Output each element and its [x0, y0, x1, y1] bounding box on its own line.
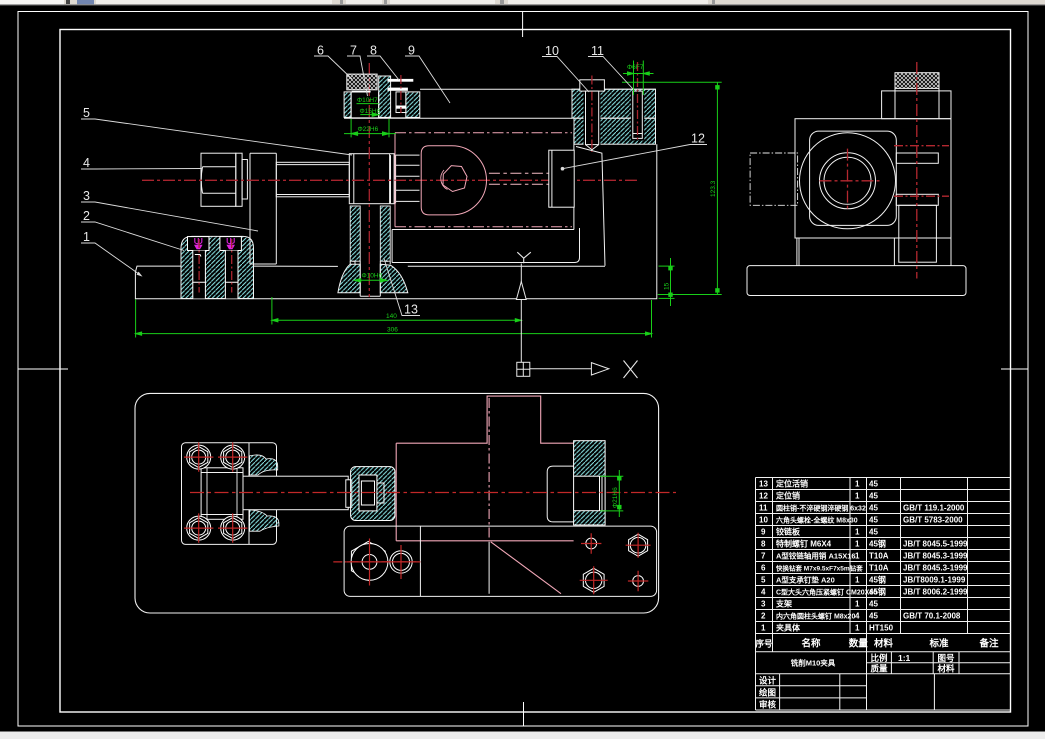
svg-text:JB/T 8006.2-1999: JB/T 8006.2-1999	[903, 588, 968, 597]
svg-text:特制螺钉 M6X4: 特制螺钉 M6X4	[776, 539, 832, 549]
svg-text:支架: 支架	[775, 599, 792, 609]
svg-text:序号: 序号	[754, 639, 773, 649]
svg-text:45: 45	[869, 516, 878, 525]
svg-text:4: 4	[855, 612, 860, 621]
svg-text:Φ10H6: Φ10H6	[362, 273, 383, 280]
svg-text:9: 9	[761, 528, 766, 537]
svg-text:45: 45	[869, 492, 878, 501]
svg-text:4: 4	[761, 588, 766, 597]
svg-text:10: 10	[545, 44, 559, 58]
svg-text:1: 1	[855, 576, 860, 585]
svg-text:6: 6	[761, 564, 766, 573]
svg-text:13: 13	[759, 480, 768, 489]
svg-text:JB/T 8045.5-1999: JB/T 8045.5-1999	[903, 540, 968, 549]
svg-text:夹具体: 夹具体	[776, 623, 801, 633]
svg-text:JB/T8009.1-1999: JB/T8009.1-1999	[903, 576, 966, 585]
svg-text:11: 11	[591, 44, 604, 58]
svg-text:GB/T 119.1-2000: GB/T 119.1-2000	[903, 504, 965, 513]
svg-text:2: 2	[761, 612, 766, 621]
svg-text:1: 1	[855, 624, 860, 633]
svg-text:1: 1	[855, 480, 860, 489]
svg-text:备注: 备注	[978, 638, 999, 650]
svg-text:45: 45	[869, 504, 878, 513]
svg-text:45: 45	[869, 480, 878, 489]
svg-text:4: 4	[83, 156, 90, 170]
svg-text:HT150: HT150	[869, 624, 894, 633]
svg-text:六角头螺栓-全螺纹 M8x30: 六角头螺栓-全螺纹 M8x30	[776, 516, 858, 525]
svg-text:JB/T 8045.3-1999: JB/T 8045.3-1999	[903, 552, 968, 561]
svg-text:数量: 数量	[848, 638, 869, 650]
svg-text:11: 11	[759, 504, 768, 513]
svg-text:3: 3	[761, 600, 766, 609]
svg-text:Φ21H6: Φ21H6	[612, 487, 619, 508]
svg-text:快换钻套 M7x9.5xF7x5m钻套: 快换钻套 M7x9.5xF7x5m钻套	[776, 564, 863, 573]
svg-text:材料: 材料	[936, 664, 955, 674]
svg-text:T10A: T10A	[869, 552, 889, 561]
svg-text:Φ10H7: Φ10H7	[357, 97, 378, 104]
svg-text:A型铰链轴用销 A15X16: A型铰链轴用销 A15X16	[776, 551, 856, 561]
svg-text:Φ6F7: Φ6F7	[627, 64, 644, 71]
svg-text:铰链板: 铰链板	[776, 527, 801, 537]
svg-text:13: 13	[404, 303, 418, 317]
svg-text:1: 1	[855, 528, 860, 537]
svg-text:标准: 标准	[928, 638, 949, 650]
svg-text:Φ22H6: Φ22H6	[358, 126, 379, 133]
svg-text:306: 306	[387, 327, 398, 334]
svg-text:45: 45	[869, 612, 878, 621]
svg-text:审核: 审核	[759, 699, 777, 709]
svg-text:7: 7	[761, 552, 766, 561]
svg-text:GB/T 5783-2000: GB/T 5783-2000	[903, 516, 963, 525]
svg-text:5: 5	[761, 576, 766, 585]
svg-text:绘图: 绘图	[759, 687, 776, 697]
svg-text:T10A: T10A	[869, 564, 889, 573]
svg-text:设计: 设计	[759, 675, 777, 685]
svg-text:7: 7	[350, 44, 357, 58]
svg-text:1: 1	[855, 492, 860, 501]
svg-text:10: 10	[759, 516, 768, 525]
svg-text:A型支承钉垫 A20: A型支承钉垫 A20	[776, 575, 835, 585]
svg-text:45钢: 45钢	[869, 575, 886, 585]
svg-text:15: 15	[664, 282, 671, 290]
svg-text:12: 12	[691, 132, 705, 146]
svg-text:内六角圆柱头螺钉 M8x20: 内六角圆柱头螺钉 M8x20	[776, 612, 855, 621]
svg-text:1: 1	[855, 540, 860, 549]
svg-text:C型大头六角压紧螺钉 CM20X50: C型大头六角压紧螺钉 CM20X50	[776, 588, 877, 597]
svg-text:1: 1	[761, 624, 766, 633]
svg-text:Φ15H6: Φ15H6	[360, 108, 381, 115]
svg-text:8: 8	[370, 44, 377, 58]
svg-text:质量: 质量	[870, 664, 888, 674]
svg-text:12: 12	[759, 492, 768, 501]
svg-text:45钢: 45钢	[869, 587, 886, 597]
svg-text:6: 6	[317, 44, 324, 58]
svg-text:140: 140	[386, 313, 397, 320]
svg-text:2: 2	[83, 209, 90, 223]
svg-text:定位销: 定位销	[775, 491, 800, 501]
svg-text:45: 45	[869, 528, 878, 537]
svg-text:GB/T 70.1-2008: GB/T 70.1-2008	[903, 612, 961, 621]
svg-text:JB/T 8045.3-1999: JB/T 8045.3-1999	[903, 564, 968, 573]
svg-text:1:1: 1:1	[898, 653, 911, 663]
svg-text:3: 3	[83, 189, 90, 203]
svg-text:圆柱销-不淬硬钢淬硬钢 6x32: 圆柱销-不淬硬钢淬硬钢 6x32	[776, 504, 866, 513]
svg-text:45钢: 45钢	[869, 539, 886, 549]
svg-text:45: 45	[869, 600, 878, 609]
svg-text:1: 1	[855, 600, 860, 609]
svg-text:比例: 比例	[870, 653, 888, 663]
svg-text:1: 1	[855, 552, 860, 561]
svg-text:8: 8	[761, 540, 766, 549]
svg-text:定位活销: 定位活销	[775, 479, 808, 489]
svg-text:1: 1	[83, 230, 90, 244]
svg-text:材料: 材料	[873, 638, 894, 650]
svg-text:9: 9	[408, 44, 415, 58]
svg-text:5: 5	[83, 106, 90, 120]
svg-text:图号: 图号	[937, 653, 955, 663]
svg-text:123.3: 123.3	[710, 180, 717, 197]
svg-text:铣削M10夹具: 铣削M10夹具	[791, 658, 836, 668]
svg-text:名称: 名称	[801, 638, 821, 650]
